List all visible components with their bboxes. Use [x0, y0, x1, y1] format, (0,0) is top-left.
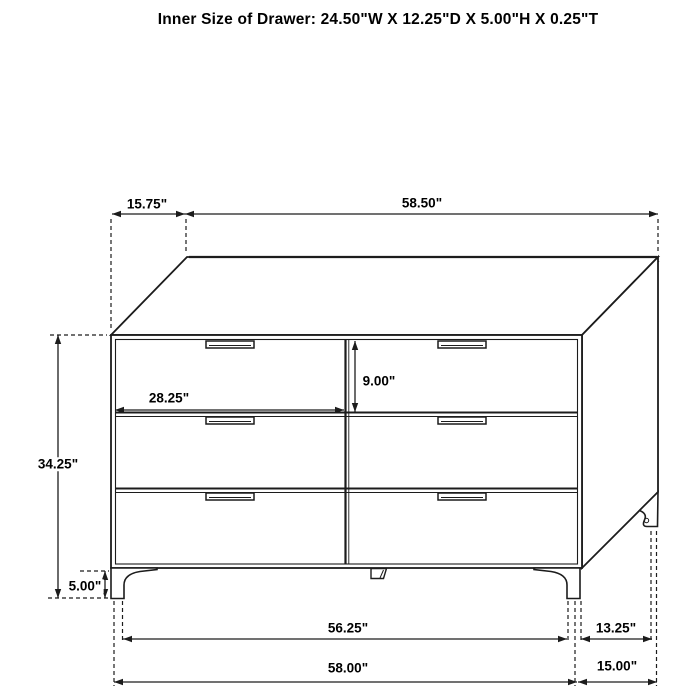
dimension-diagram: Inner Size of Drawer: 24.50"W X 12.25"D …: [0, 0, 700, 700]
dim-label-leg-height: 5.00": [67, 579, 104, 593]
dim-label-drawer-width: 28.25": [147, 391, 191, 405]
drawer-handle: [438, 341, 486, 348]
dim-label-base-overall-width: 58.00": [326, 661, 370, 675]
dim-label-base-overall-depth: 15.00": [595, 659, 639, 673]
front-left-leg: [111, 568, 157, 599]
front-right-leg: [534, 568, 580, 599]
dresser-top-face: [111, 257, 659, 339]
middle-support: [371, 569, 387, 579]
dresser-front-legs: [111, 568, 580, 599]
dresser-diagram-svg: [0, 0, 700, 700]
dim-label-top-depth: 15.75": [125, 197, 169, 211]
dim-label-overall-height: 34.25": [36, 457, 80, 471]
dim-label-top-width: 58.50": [400, 196, 444, 210]
drawer-handle: [206, 493, 254, 500]
dim-label-drawer-height: 9.00": [361, 374, 398, 388]
dresser-front-face: [111, 335, 582, 568]
drawer-handle: [206, 341, 254, 348]
dim-label-base-inner-width: 56.25": [326, 621, 370, 635]
diagram-title: Inner Size of Drawer: 24.50"W X 12.25"D …: [0, 11, 700, 29]
drawer-handle: [206, 417, 254, 424]
dim-label-base-inner-depth: 13.25": [594, 621, 638, 635]
drawer-handle: [438, 417, 486, 424]
drawer-handle: [438, 493, 486, 500]
